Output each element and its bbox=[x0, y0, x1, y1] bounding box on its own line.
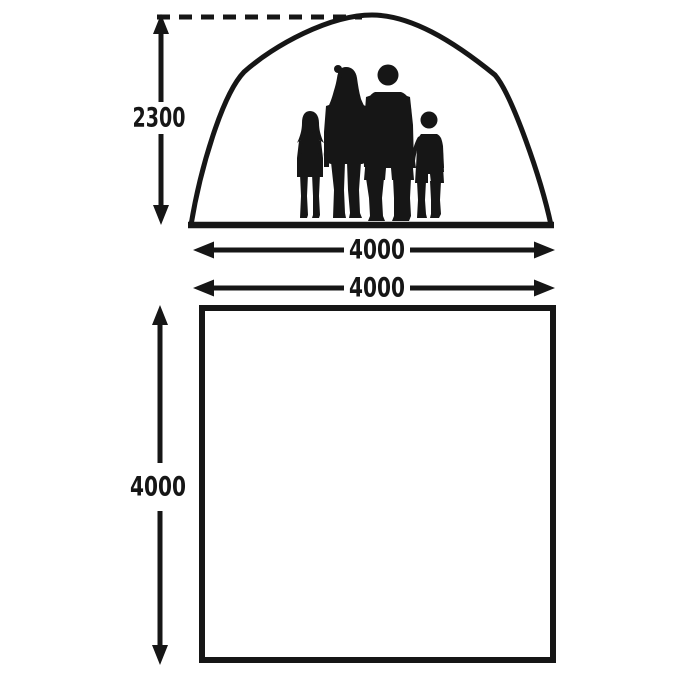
tent-dimension-diagram: 2300 bbox=[0, 0, 700, 700]
floorplan-height-label: 4000 bbox=[130, 472, 186, 503]
down-arrowhead-icon bbox=[153, 205, 169, 225]
elevation-height-dimension: 2300 bbox=[133, 14, 186, 225]
figure-boy-silhouette bbox=[411, 112, 444, 219]
figure-girl-silhouette bbox=[297, 111, 324, 218]
diagram-svg: 2300 bbox=[0, 0, 700, 700]
floorplan-width-dimension: 4000 bbox=[193, 273, 555, 304]
elevation-width-label: 4000 bbox=[349, 235, 405, 266]
floor-plan-view: 4000 4000 bbox=[130, 273, 555, 666]
down-arrowhead-icon bbox=[152, 645, 168, 665]
figure-woman-silhouette bbox=[324, 65, 369, 218]
figure-man-silhouette bbox=[364, 65, 414, 222]
family-silhouette bbox=[297, 65, 444, 222]
floorplan-height-dimension: 4000 bbox=[130, 305, 186, 665]
floorplan-outline bbox=[202, 308, 553, 660]
left-arrowhead-icon bbox=[193, 242, 214, 259]
elevation-height-label: 2300 bbox=[133, 103, 186, 134]
elevation-width-dimension: 4000 bbox=[193, 235, 555, 266]
floorplan-width-label: 4000 bbox=[349, 273, 405, 304]
right-arrowhead-icon bbox=[534, 280, 555, 297]
right-arrowhead-icon bbox=[534, 242, 555, 259]
elevation-view: 2300 bbox=[133, 14, 556, 266]
left-arrowhead-icon bbox=[193, 280, 214, 297]
